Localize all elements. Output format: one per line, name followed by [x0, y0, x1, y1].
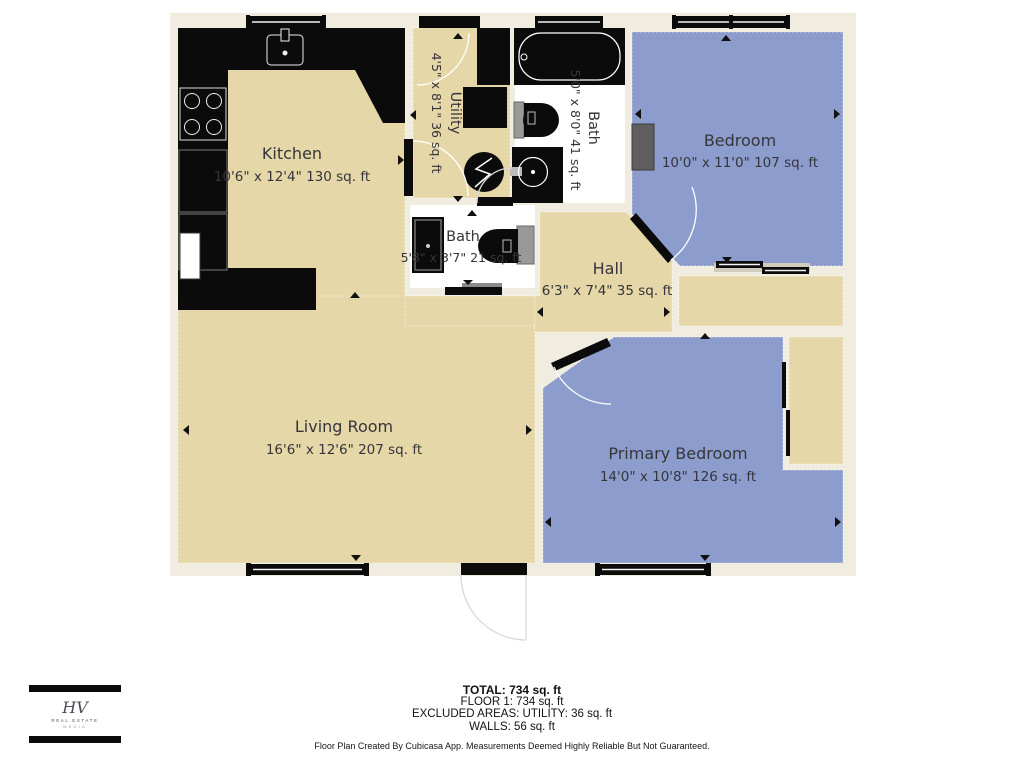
logo-monogram: HV [62, 700, 88, 716]
logo-bottom-bar [29, 736, 121, 743]
utility-dims: 4'5" x 8'1" 36 sq. ft [429, 53, 444, 174]
walls-area-text: WALLS: 56 sq. ft [0, 721, 1024, 733]
logo-real-estate-label: REAL ESTATE [51, 718, 98, 723]
bath-mid-dims: 5'8" x 3'7" 21 sq. ft [401, 250, 522, 265]
window [595, 563, 711, 576]
bath-top-label: Bath [585, 111, 601, 145]
washbasin-fixture [510, 147, 563, 203]
logo: HV REAL ESTATE MEDIA [29, 685, 121, 743]
primary-bedroom-label: Primary Bedroom [608, 444, 747, 463]
area-summary: TOTAL: 734 sq. ft FLOOR 1: 734 sq. ft EX… [0, 684, 1024, 733]
primary-bedroom-dims: 14'0" x 10'8" 126 sq. ft [600, 469, 756, 485]
kitchen-dims: 10'6" x 12'4" 130 sq. ft [214, 169, 370, 185]
window [419, 16, 480, 28]
entry-door [461, 563, 527, 640]
kitchen-label: Kitchen [262, 144, 322, 163]
window [535, 16, 603, 28]
hall-connector-floor [405, 296, 535, 326]
disclaimer-text: Floor Plan Created By Cubicasa App. Meas… [0, 741, 1024, 751]
logo-media-label: MEDIA [63, 724, 87, 729]
window [246, 563, 369, 576]
window [246, 15, 326, 29]
bedroom-label: Bedroom [704, 131, 776, 150]
hall-dims: 6'3" x 7'4" 35 sq. ft [542, 283, 673, 299]
bedroom-dims: 10'0" x 11'0" 107 sq. ft [662, 155, 818, 171]
floor-plan: Kitchen 10'6" x 12'4" 130 sq. ft Utility… [0, 0, 1024, 768]
excluded-area-text: EXCLUDED AREAS: UTILITY: 36 sq. ft [0, 708, 1024, 720]
stove-fixture [180, 88, 226, 140]
floor-area-text: FLOOR 1: 734 sq. ft [0, 696, 1024, 708]
total-area-text: TOTAL: 734 sq. ft [0, 684, 1024, 696]
door-leaf [477, 197, 513, 206]
bath-mid-label: Bath [446, 229, 480, 245]
dresser-fixture [632, 124, 654, 170]
furnace-fixture [463, 87, 507, 128]
living-room-dims: 16'6" x 12'6" 207 sq. ft [266, 442, 422, 458]
living-room-label: Living Room [295, 417, 393, 436]
door-leaf [461, 563, 527, 575]
kitchen-sink-fixture [263, 29, 307, 69]
bath-top-dims: 5'0" x 8'0" 41 sq. ft [568, 70, 583, 191]
utility-cabinet [477, 28, 510, 85]
logo-top-bar [29, 685, 121, 692]
door-arc [461, 575, 526, 640]
toilet-fixture [514, 102, 559, 138]
dishwasher-fixture [180, 233, 200, 279]
window [672, 15, 790, 29]
vanity-fixture [445, 287, 502, 295]
primary-closet-floor [789, 337, 843, 464]
hall-closet-floor [679, 276, 843, 326]
hall-label: Hall [593, 259, 624, 278]
water-heater-fixture [464, 152, 504, 192]
utility-label: Utility [447, 92, 463, 135]
door-leaf [404, 139, 413, 196]
